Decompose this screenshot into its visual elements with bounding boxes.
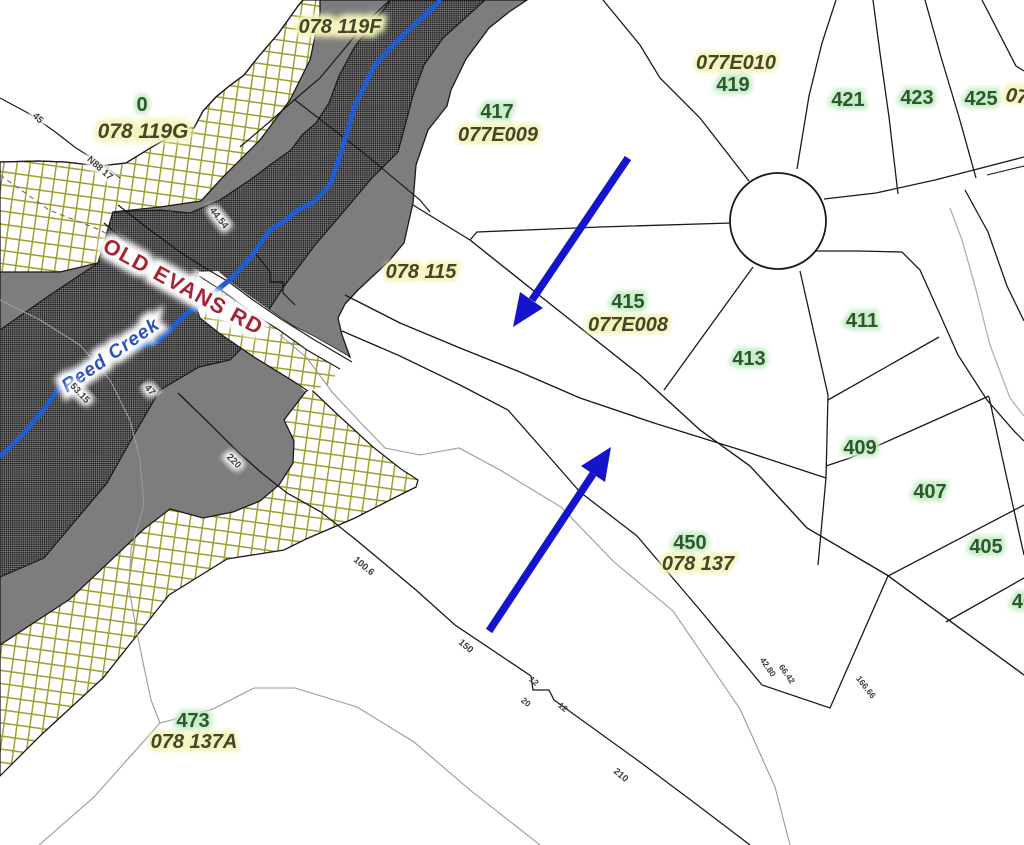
svg-text:421: 421 [831, 89, 864, 111]
svg-text:078 119G: 078 119G [98, 120, 189, 143]
svg-text:413: 413 [732, 348, 765, 370]
svg-text:077E010: 077E010 [696, 52, 776, 74]
svg-text:078 137A: 078 137A [151, 731, 238, 753]
svg-text:405: 405 [969, 536, 1002, 558]
svg-text:40: 40 [1012, 591, 1024, 613]
svg-text:078 137: 078 137 [662, 553, 735, 575]
svg-text:409: 409 [843, 437, 876, 459]
svg-text:077E009: 077E009 [458, 124, 539, 146]
svg-text:415: 415 [611, 291, 644, 313]
svg-text:407: 407 [913, 481, 946, 503]
svg-text:077E008: 077E008 [588, 314, 669, 336]
svg-text:473: 473 [176, 710, 209, 732]
svg-text:419: 419 [716, 74, 749, 96]
svg-text:0: 0 [136, 94, 147, 116]
svg-text:078 115: 078 115 [386, 261, 458, 283]
svg-text:417: 417 [480, 101, 513, 123]
svg-text:423: 423 [900, 87, 933, 109]
svg-text:425: 425 [964, 88, 997, 110]
svg-text:450: 450 [673, 532, 706, 554]
svg-text:078 119F: 078 119F [298, 16, 382, 38]
svg-text:411: 411 [846, 310, 878, 332]
